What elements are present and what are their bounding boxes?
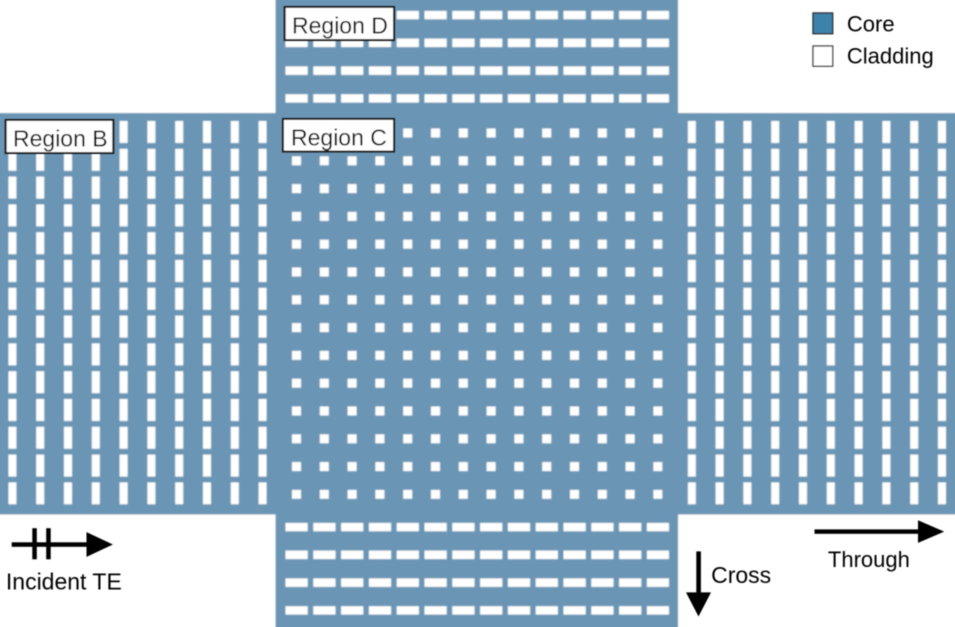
- svg-text:Region B: Region B: [13, 126, 108, 152]
- svg-text:Incident TE: Incident TE: [6, 568, 122, 594]
- svg-text:Core: Core: [847, 11, 895, 36]
- svg-text:Through: Through: [828, 547, 910, 572]
- svg-text:Region D: Region D: [292, 13, 388, 39]
- svg-text:Cross: Cross: [711, 562, 771, 588]
- svg-text:Region C: Region C: [291, 125, 387, 151]
- svg-text:Cladding: Cladding: [847, 44, 934, 69]
